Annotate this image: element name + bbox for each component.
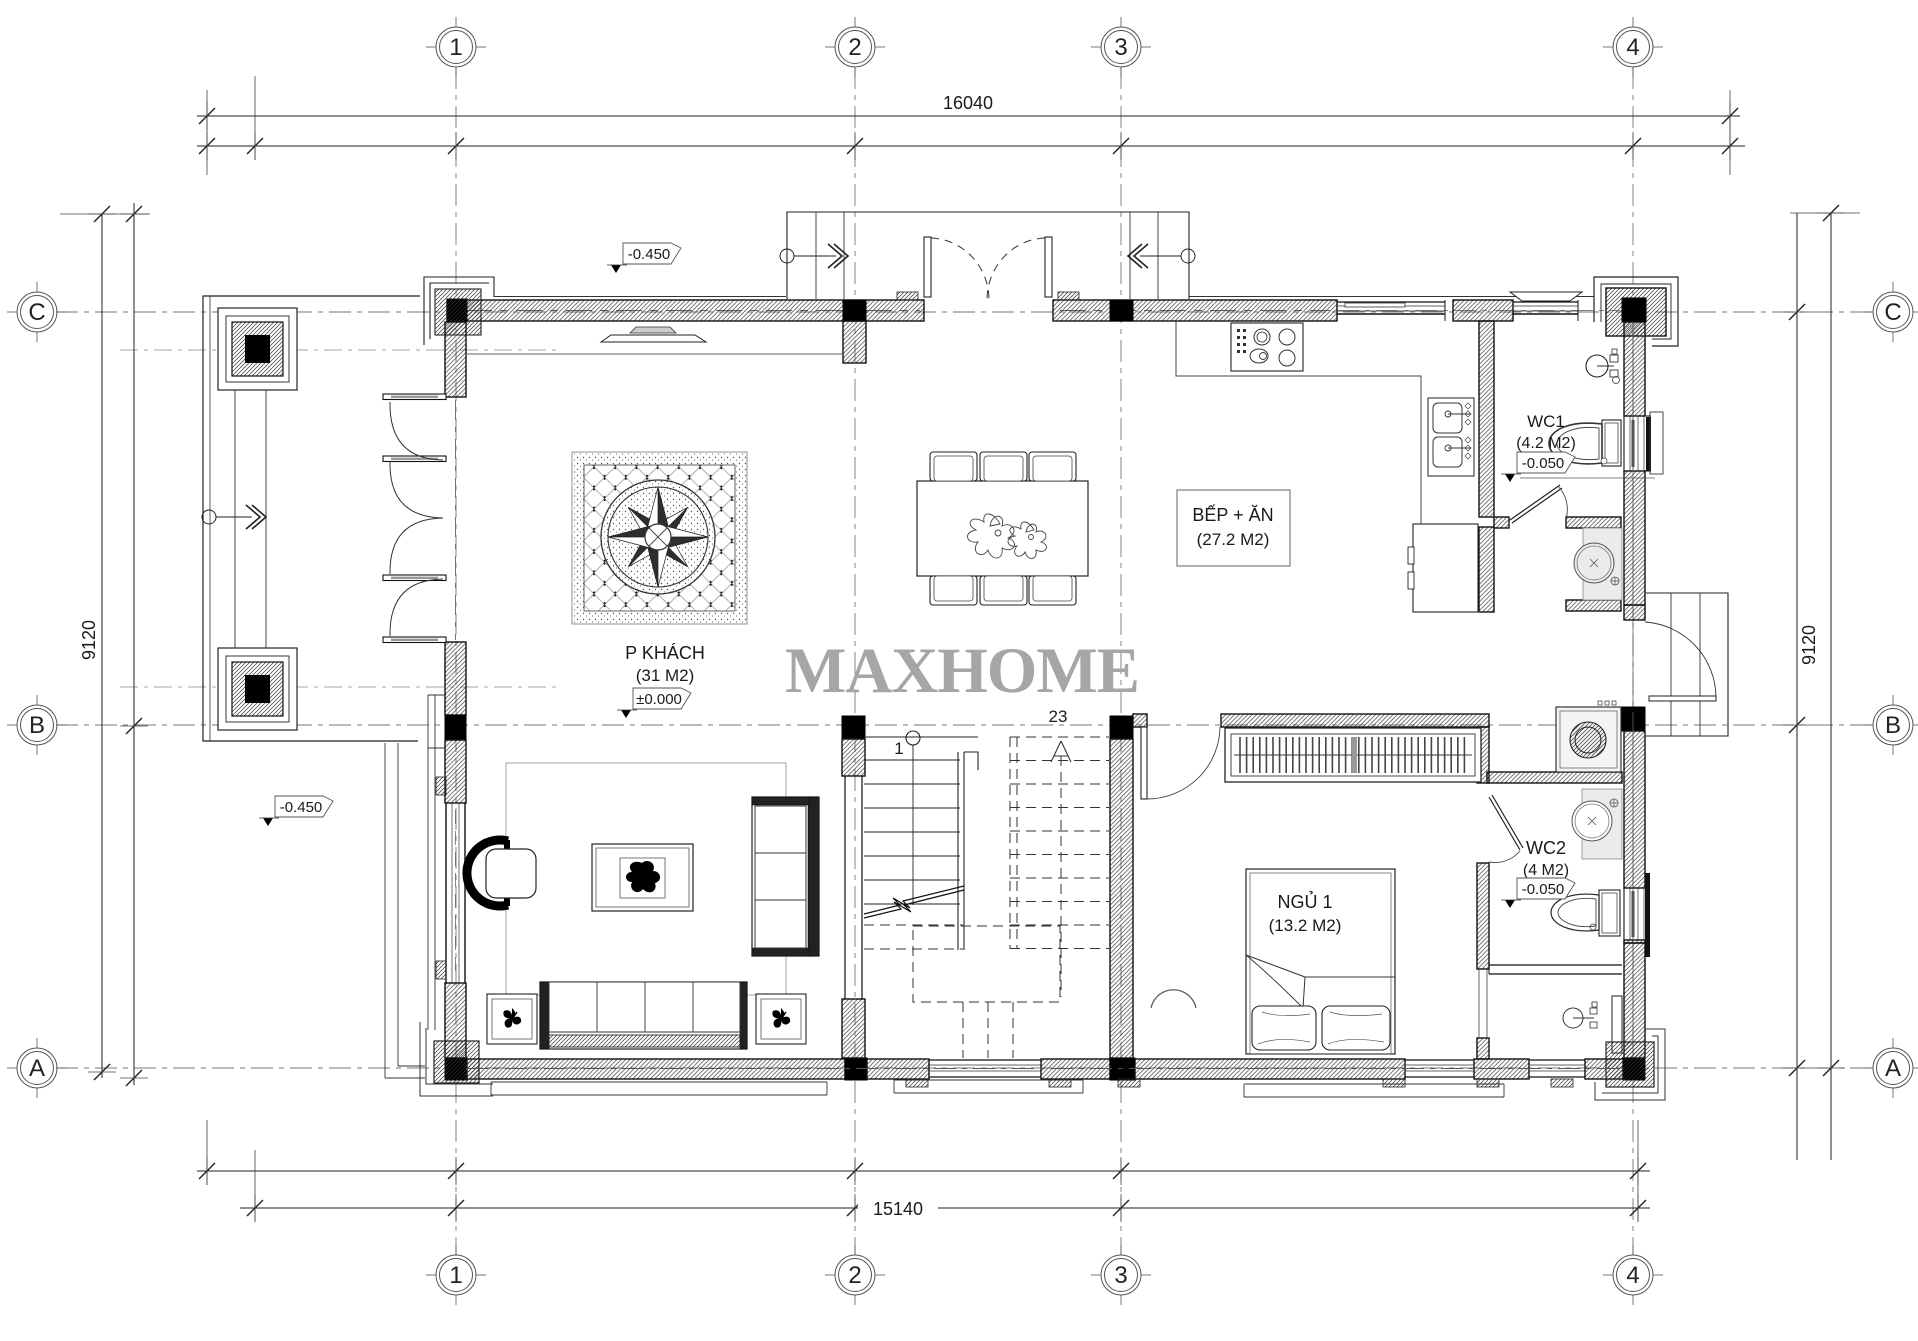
svg-text:1: 1 xyxy=(449,34,462,61)
svg-text:(27.2 M2): (27.2 M2) xyxy=(1197,530,1270,549)
svg-text:BẾP + ĂN: BẾP + ĂN xyxy=(1192,504,1273,525)
svg-text:±0.000: ±0.000 xyxy=(636,691,682,708)
svg-text:WC1: WC1 xyxy=(1527,412,1565,431)
svg-text:B: B xyxy=(29,712,45,739)
svg-text:3: 3 xyxy=(1114,34,1127,61)
svg-text:9120: 9120 xyxy=(1799,625,1819,665)
svg-text:4: 4 xyxy=(1626,34,1639,61)
svg-text:1: 1 xyxy=(894,739,903,758)
svg-text:(13.2 M2): (13.2 M2) xyxy=(1269,916,1342,935)
svg-text:WC2: WC2 xyxy=(1526,838,1566,858)
svg-text:A: A xyxy=(29,1055,45,1082)
svg-text:(4.2 M2): (4.2 M2) xyxy=(1516,435,1576,452)
svg-text:-0.050: -0.050 xyxy=(1522,455,1565,472)
svg-text:MAXHOME: MAXHOME xyxy=(785,635,1139,707)
svg-text:4: 4 xyxy=(1626,1262,1639,1289)
svg-text:16040: 16040 xyxy=(943,93,993,113)
svg-text:(31 M2): (31 M2) xyxy=(636,666,695,685)
svg-text:1: 1 xyxy=(449,1262,462,1289)
svg-text:-0.450: -0.450 xyxy=(280,799,323,816)
svg-text:C: C xyxy=(1884,299,1901,326)
svg-text:-0.450: -0.450 xyxy=(628,246,671,263)
svg-text:-0.050: -0.050 xyxy=(1522,881,1565,898)
svg-text:P KHÁCH: P KHÁCH xyxy=(625,643,705,663)
svg-text:2: 2 xyxy=(848,1262,861,1289)
svg-text:15140: 15140 xyxy=(873,1199,923,1219)
svg-text:2: 2 xyxy=(848,34,861,61)
svg-text:B: B xyxy=(1885,712,1901,739)
svg-text:(4 M2): (4 M2) xyxy=(1523,862,1569,879)
svg-text:A: A xyxy=(1885,1055,1901,1082)
svg-text:9120: 9120 xyxy=(79,620,99,660)
svg-text:23: 23 xyxy=(1049,707,1068,726)
svg-text:3: 3 xyxy=(1114,1262,1127,1289)
svg-text:NGỦ 1: NGỦ 1 xyxy=(1277,891,1332,912)
svg-text:C: C xyxy=(28,299,45,326)
